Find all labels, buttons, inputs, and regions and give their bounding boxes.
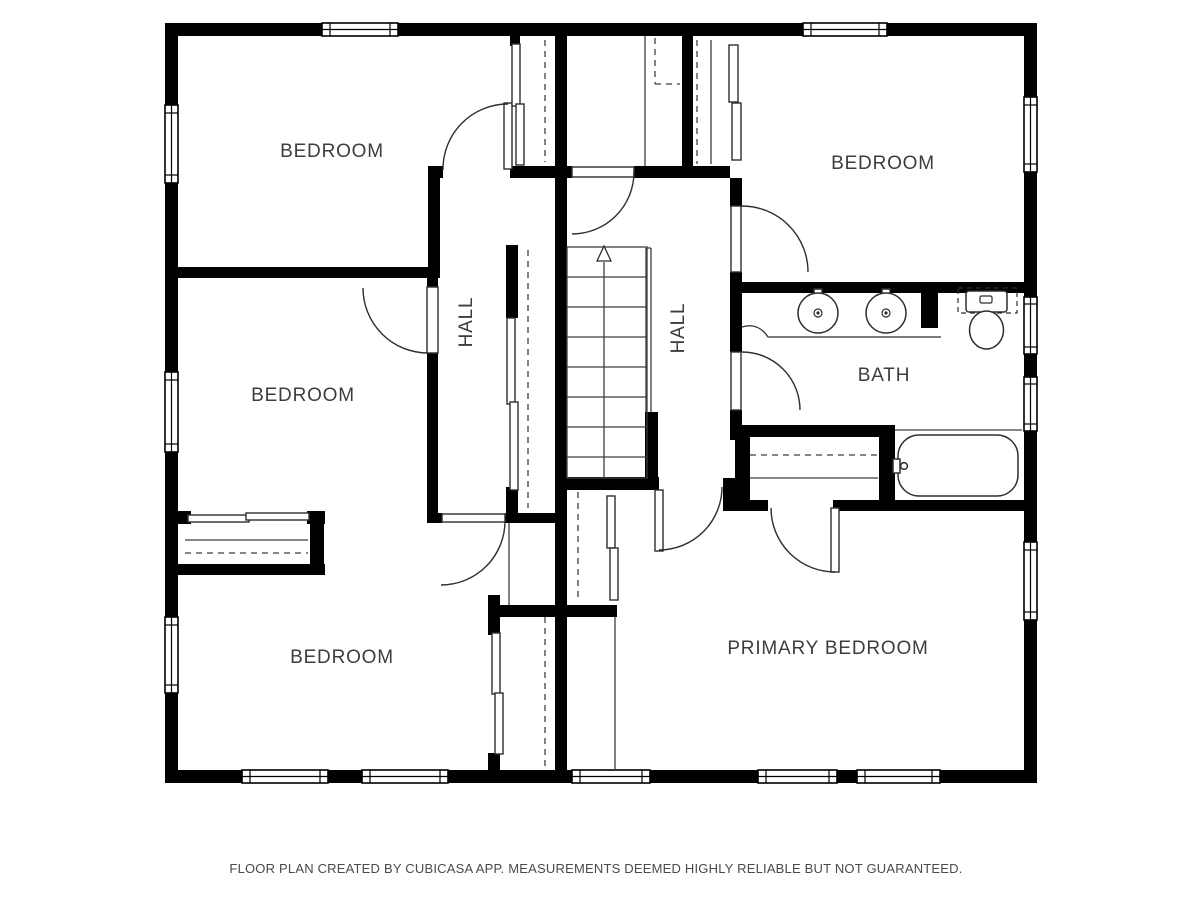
door-primary-closet <box>771 508 839 572</box>
door-bedroom-top-left <box>443 103 512 170</box>
toilet-icon <box>958 288 1017 349</box>
footer-disclaimer: FLOOR PLAN CREATED BY CUBICASA APP. MEAS… <box>229 861 962 876</box>
door-bedroom-bottom-left <box>441 514 505 585</box>
window <box>165 617 178 693</box>
window <box>1024 97 1037 172</box>
room-label-bedroom-top-right: BEDROOM <box>831 153 935 174</box>
room-label-bedroom-top-left: BEDROOM <box>280 141 384 162</box>
window <box>1024 542 1037 620</box>
window <box>165 105 178 183</box>
room-label-hall-right: HALL <box>668 303 689 354</box>
floor-plan-page: BEDROOM BEDROOM BEDROOM HALL HALL BATH B… <box>0 0 1200 900</box>
door-bedroom-top-right <box>731 206 808 272</box>
room-label-bedroom-mid-left: BEDROOM <box>251 385 355 406</box>
window <box>165 372 178 452</box>
room-label-bedroom-bottom-left: BEDROOM <box>290 647 394 668</box>
bathtub-icon <box>893 430 1022 496</box>
window <box>803 23 887 36</box>
window <box>857 770 940 783</box>
window <box>572 770 650 783</box>
room-label-primary-bedroom: PRIMARY BEDROOM <box>727 638 928 659</box>
vanity-counter <box>742 326 941 337</box>
door-bedroom-mid-left <box>363 287 438 353</box>
window <box>242 770 328 783</box>
stair-direction-arrow-icon <box>597 246 611 261</box>
door-stair-landing <box>572 167 634 234</box>
sink-icon <box>866 289 906 333</box>
floor-plan-canvas: BEDROOM BEDROOM BEDROOM HALL HALL BATH B… <box>0 0 1200 900</box>
room-labels: BEDROOM BEDROOM BEDROOM HALL HALL BATH B… <box>251 141 935 668</box>
room-label-hall-left: HALL <box>456 297 477 348</box>
staircase <box>567 36 680 478</box>
window <box>758 770 837 783</box>
window <box>362 770 448 783</box>
sink-icon <box>798 289 838 333</box>
window <box>322 23 398 36</box>
door-bath <box>731 352 800 410</box>
window <box>1024 377 1037 431</box>
room-label-bath: BATH <box>858 365 910 386</box>
window <box>1024 297 1037 354</box>
door-primary-bedroom <box>655 487 722 551</box>
